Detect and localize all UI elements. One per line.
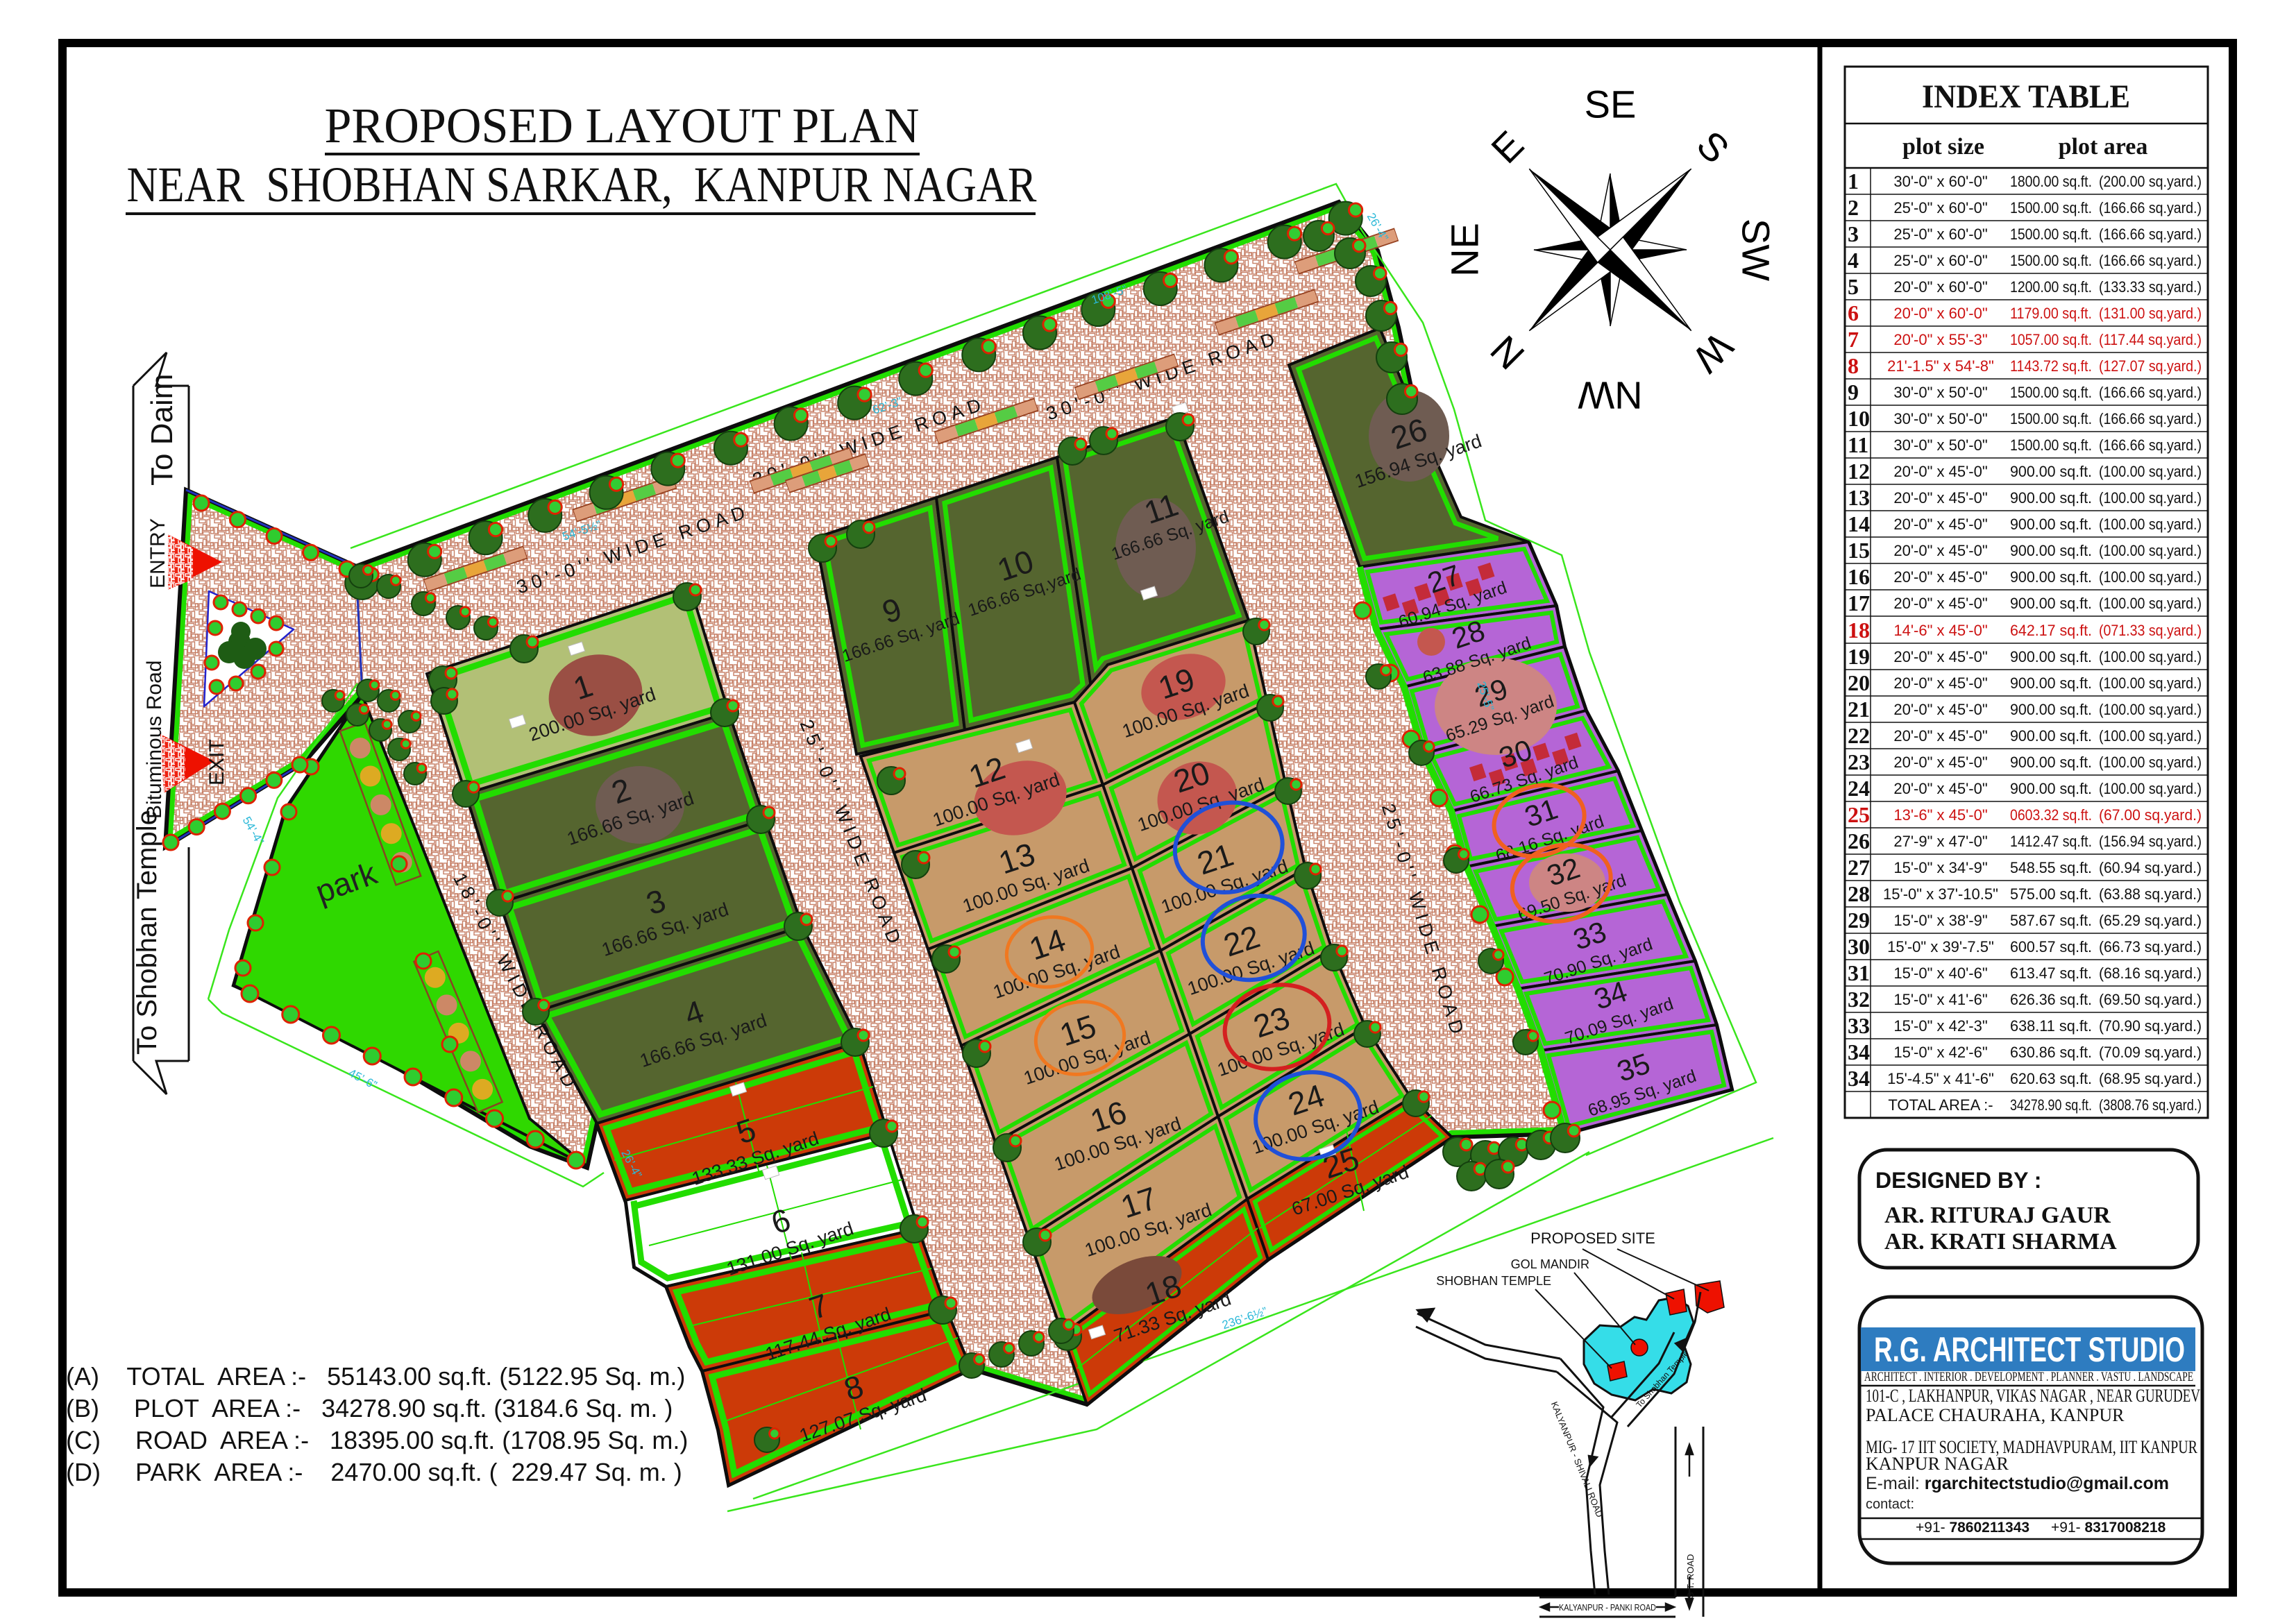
svg-text:(131.00 sq.yard.): (131.00 sq.yard.) — [2099, 305, 2202, 322]
svg-text:22: 22 — [1848, 723, 1870, 748]
svg-text:24: 24 — [1848, 776, 1870, 801]
svg-text:20'-0" x 45'-0": 20'-0" x 45'-0" — [1893, 701, 1987, 718]
svg-text:626.36 sq.ft.: 626.36 sq.ft. — [2010, 991, 2092, 1008]
svg-text:575.00 sq.ft.: 575.00 sq.ft. — [2010, 885, 2092, 903]
svg-text:(156.94 sq.yard.): (156.94 sq.yard.) — [2099, 833, 2202, 850]
svg-text:16: 16 — [1848, 564, 1870, 589]
svg-text:34: 34 — [1848, 1039, 1870, 1064]
svg-text:13: 13 — [1848, 485, 1870, 510]
svg-text:(63.88 sq.yard.): (63.88 sq.yard.) — [2099, 885, 2202, 903]
svg-text:14'-6" x 45'-0": 14'-6" x 45'-0" — [1893, 622, 1987, 639]
svg-text:+91- 8317008218: +91- 8317008218 — [2051, 1520, 2166, 1536]
svg-text:KANPUR NAGAR: KANPUR NAGAR — [1866, 1454, 2009, 1474]
svg-text:1200.00 sq.ft.: 1200.00 sq.ft. — [2010, 278, 2092, 296]
svg-text:(100.00 sq.yard.): (100.00 sq.yard.) — [2099, 727, 2202, 745]
svg-text:4: 4 — [1848, 248, 1859, 273]
svg-text:(166.66 sq.yard.): (166.66 sq.yard.) — [2099, 410, 2202, 427]
svg-text:(100.00 sq.yard.): (100.00 sq.yard.) — [2099, 595, 2202, 612]
svg-text:21: 21 — [1848, 697, 1870, 722]
svg-text:(68.95 sq.yard.): (68.95 sq.yard.) — [2099, 1070, 2202, 1087]
svg-text:25'-0" x 60'-0": 25'-0" x 60'-0" — [1893, 226, 1987, 243]
svg-text:contact:: contact: — [1866, 1497, 1914, 1512]
svg-text:(A) TOTAL AREA :- 55143.: (A) TOTAL AREA :- 55143.00 sq.ft. (5122.… — [66, 1362, 685, 1391]
svg-text:5: 5 — [1848, 274, 1859, 299]
svg-text:20'-0" x 45'-0": 20'-0" x 45'-0" — [1893, 780, 1987, 797]
svg-text:NEAR SHOBHAN SARKAR, KANPUR: NEAR SHOBHAN SARKAR, KANPUR NAGAR — [127, 157, 1037, 212]
svg-text:(66.73 sq.yard.): (66.73 sq.yard.) — [2099, 938, 2202, 955]
svg-text:(100.00 sq.yard.): (100.00 sq.yard.) — [2099, 701, 2202, 718]
svg-text:25'-0" x 60'-0": 25'-0" x 60'-0" — [1893, 199, 1987, 216]
svg-text:25: 25 — [1848, 802, 1870, 827]
svg-text:20'-0" x 45'-0": 20'-0" x 45'-0" — [1893, 542, 1987, 559]
svg-text:33: 33 — [1848, 1013, 1870, 1038]
svg-text:900.00 sq.ft.: 900.00 sq.ft. — [2010, 727, 2092, 745]
svg-text:(65.29 sq.yard.): (65.29 sq.yard.) — [2099, 912, 2202, 929]
svg-text:SW: SW — [1734, 219, 1778, 281]
svg-text:NE: NE — [1443, 223, 1487, 277]
svg-text:20'-0" x 60'-0": 20'-0" x 60'-0" — [1893, 305, 1987, 322]
svg-text:548.55 sq.ft.: 548.55 sq.ft. — [2010, 859, 2092, 876]
svg-text:1500.00 sq.ft.: 1500.00 sq.ft. — [2010, 384, 2092, 401]
svg-text:900.00 sq.ft.: 900.00 sq.ft. — [2010, 754, 2092, 771]
svg-text:630.86 sq.ft.: 630.86 sq.ft. — [2010, 1044, 2092, 1061]
svg-text:900.00 sq.ft.: 900.00 sq.ft. — [2010, 674, 2092, 692]
svg-text:642.17 sq.ft.: 642.17 sq.ft. — [2010, 622, 2092, 639]
svg-text:900.00 sq.ft.: 900.00 sq.ft. — [2010, 489, 2092, 507]
svg-text:20'-0" x 45'-0": 20'-0" x 45'-0" — [1893, 674, 1987, 692]
svg-text:TOTAL AREA :-: TOTAL AREA :- — [1888, 1096, 1993, 1114]
svg-text:(133.33 sq.yard.): (133.33 sq.yard.) — [2099, 278, 2202, 296]
svg-text:(70.09 sq.yard.): (70.09 sq.yard.) — [2099, 1044, 2202, 1061]
svg-text:900.00 sq.ft.: 900.00 sq.ft. — [2010, 568, 2092, 586]
svg-text:600.57 sq.ft.: 600.57 sq.ft. — [2010, 938, 2092, 955]
svg-text:900.00 sq.ft.: 900.00 sq.ft. — [2010, 780, 2092, 797]
svg-text:15: 15 — [1848, 538, 1870, 563]
svg-text:15'-0" x 41'-6": 15'-0" x 41'-6" — [1893, 991, 1987, 1008]
svg-text:19: 19 — [1848, 644, 1870, 669]
svg-text:(100.00 sq.yard.): (100.00 sq.yard.) — [2099, 568, 2202, 586]
svg-text:20'-0" x 45'-0": 20'-0" x 45'-0" — [1893, 463, 1987, 480]
svg-text:587.67 sq.ft.: 587.67 sq.ft. — [2010, 912, 2092, 929]
svg-text:18: 18 — [1848, 618, 1870, 643]
svg-text:10: 10 — [1848, 406, 1870, 431]
svg-text:GOL MANDIR: GOL MANDIR — [1511, 1257, 1589, 1271]
svg-text:EXIT: EXIT — [205, 739, 228, 785]
svg-text:13'-6" x 45'-0": 13'-6" x 45'-0" — [1893, 806, 1987, 824]
svg-text:(166.66 sq.yard.): (166.66 sq.yard.) — [2099, 436, 2202, 454]
svg-text:PALACE CHAURAHA, KANPUR: PALACE CHAURAHA, KANPUR — [1866, 1405, 2125, 1425]
svg-text:AR. RITURAJ GAUR: AR. RITURAJ GAUR — [1884, 1203, 2111, 1228]
svg-text:11: 11 — [1848, 432, 1868, 457]
svg-text:(200.00 sq.yard.): (200.00 sq.yard.) — [2099, 173, 2202, 190]
svg-text:6: 6 — [1848, 300, 1859, 325]
svg-text:3: 3 — [1848, 221, 1859, 246]
svg-text:+91- 7860211343: +91- 7860211343 — [1916, 1520, 2029, 1536]
svg-text:(100.00 sq.yard.): (100.00 sq.yard.) — [2099, 463, 2202, 480]
svg-text:101-C , LAKHANPUR, VIKAS NAGAR: 101-C , LAKHANPUR, VIKAS NAGAR , NEAR GU… — [1866, 1386, 2200, 1406]
svg-text:20'-0" x 45'-0": 20'-0" x 45'-0" — [1893, 489, 1987, 507]
svg-text:(166.66 sq.yard.): (166.66 sq.yard.) — [2099, 226, 2202, 243]
svg-text:(117.44 sq.yard.): (117.44 sq.yard.) — [2099, 331, 2202, 348]
svg-text:28: 28 — [1848, 881, 1870, 906]
svg-text:900.00 sq.ft.: 900.00 sq.ft. — [2010, 463, 2092, 480]
svg-text:20'-0" x 45'-0": 20'-0" x 45'-0" — [1893, 648, 1987, 665]
svg-text:(100.00 sq.yard.): (100.00 sq.yard.) — [2099, 516, 2202, 533]
svg-text:(60.94 sq.yard.): (60.94 sq.yard.) — [2099, 859, 2202, 876]
svg-text:30'-0" x 50'-0": 30'-0" x 50'-0" — [1893, 384, 1987, 401]
svg-text:15'-0" x 40'-6": 15'-0" x 40'-6" — [1893, 965, 1987, 982]
svg-text:1500.00 sq.ft.: 1500.00 sq.ft. — [2010, 436, 2092, 454]
svg-text:15'-0" x 38'-9": 15'-0" x 38'-9" — [1893, 912, 1987, 929]
svg-text:To Shobhan Temple: To Shobhan Temple — [132, 810, 162, 1055]
svg-text:20'-0" x 45'-0": 20'-0" x 45'-0" — [1893, 568, 1987, 586]
svg-text:NW: NW — [1578, 373, 1642, 417]
svg-text:R.G. ARCHITECT STUDIO: R.G. ARCHITECT STUDIO — [1874, 1330, 2185, 1369]
svg-text:900.00 sq.ft.: 900.00 sq.ft. — [2010, 648, 2092, 665]
svg-text:21'-1.5" x 54'-8": 21'-1.5" x 54'-8" — [1887, 357, 1994, 375]
svg-text:1800.00 sq.ft.: 1800.00 sq.ft. — [2010, 173, 2092, 190]
svg-text:20'-0" x 45'-0": 20'-0" x 45'-0" — [1893, 754, 1987, 771]
svg-text:32: 32 — [1848, 987, 1870, 1012]
svg-text:1500.00 sq.ft.: 1500.00 sq.ft. — [2010, 410, 2092, 427]
svg-text:(100.00 sq.yard.): (100.00 sq.yard.) — [2099, 674, 2202, 692]
svg-text:1179.00 sq.ft.: 1179.00 sq.ft. — [2010, 305, 2092, 322]
svg-text:15'-0" x 39'-7.5": 15'-0" x 39'-7.5" — [1887, 938, 1994, 955]
svg-text:15'-0" x 42'-3": 15'-0" x 42'-3" — [1893, 1017, 1987, 1035]
svg-text:KALYANPUR - PANKI ROAD: KALYANPUR - PANKI ROAD — [1559, 1602, 1656, 1613]
svg-text:31: 31 — [1848, 960, 1870, 985]
svg-text:900.00 sq.ft.: 900.00 sq.ft. — [2010, 701, 2092, 718]
svg-text:15'-0" x 37'-10.5": 15'-0" x 37'-10.5" — [1883, 885, 1998, 903]
svg-text:(100.00 sq.yard.): (100.00 sq.yard.) — [2099, 489, 2202, 507]
svg-text:900.00 sq.ft.: 900.00 sq.ft. — [2010, 542, 2092, 559]
svg-text:INDEX TABLE: INDEX TABLE — [1922, 78, 2130, 115]
svg-text:1057.00 sq.ft.: 1057.00 sq.ft. — [2010, 331, 2092, 348]
svg-text:1500.00 sq.ft.: 1500.00 sq.ft. — [2010, 199, 2092, 216]
svg-text:27'-9" x 47'-0": 27'-9" x 47'-0" — [1893, 833, 1987, 850]
svg-text:(67.00 sq.yard.): (67.00 sq.yard.) — [2099, 806, 2202, 824]
svg-text:20'-0" x 45'-0": 20'-0" x 45'-0" — [1893, 595, 1987, 612]
svg-text:(100.00 sq.yard.): (100.00 sq.yard.) — [2099, 754, 2202, 771]
svg-text:(100.00 sq.yard.): (100.00 sq.yard.) — [2099, 542, 2202, 559]
svg-text:900.00 sq.ft.: 900.00 sq.ft. — [2010, 516, 2092, 533]
svg-text:20'-0" x 45'-0": 20'-0" x 45'-0" — [1893, 727, 1987, 745]
svg-text:(69.50 sq.yard.): (69.50 sq.yard.) — [2099, 991, 2202, 1008]
svg-text:(70.90 sq.yard.): (70.90 sq.yard.) — [2099, 1017, 2202, 1035]
svg-text:8: 8 — [1848, 353, 1859, 378]
svg-text:26: 26 — [1848, 829, 1870, 853]
svg-text:17: 17 — [1848, 590, 1870, 615]
svg-text:0603.32 sq.ft.: 0603.32 sq.ft. — [2010, 806, 2092, 824]
svg-text:1143.72 sq.ft.: 1143.72 sq.ft. — [2010, 357, 2092, 375]
svg-text:638.11 sq.ft.: 638.11 sq.ft. — [2010, 1017, 2092, 1035]
svg-text:9: 9 — [1848, 380, 1859, 405]
svg-text:620.63 sq.ft.: 620.63 sq.ft. — [2010, 1070, 2092, 1087]
svg-text:PROPOSED SITE: PROPOSED SITE — [1530, 1230, 1655, 1247]
svg-text:25'-0" x 60'-0": 25'-0" x 60'-0" — [1893, 252, 1987, 269]
svg-text:(100.00 sq.yard.): (100.00 sq.yard.) — [2099, 780, 2202, 797]
svg-text:(B) PLOT AREA :- 34278.: (B) PLOT AREA :- 34278.90 sq.ft. (3184.6… — [66, 1394, 673, 1422]
svg-text:1: 1 — [1848, 169, 1859, 194]
svg-text:29: 29 — [1848, 908, 1870, 933]
svg-text:20'-0" x 60'-0": 20'-0" x 60'-0" — [1893, 278, 1987, 296]
svg-text:(C) ROAD AREA :- 18395.: (C) ROAD AREA :- 18395.00 sq.ft. (1708.9… — [66, 1426, 688, 1454]
svg-text:20'-0" x 45'-0": 20'-0" x 45'-0" — [1893, 516, 1987, 533]
svg-text:(166.66 sq.yard.): (166.66 sq.yard.) — [2099, 252, 2202, 269]
svg-text:G T. ROAD: G T. ROAD — [1685, 1554, 1696, 1599]
svg-text:900.00 sq.ft.: 900.00 sq.ft. — [2010, 595, 2092, 612]
svg-text:(3808.76 sq.yard.): (3808.76 sq.yard.) — [2099, 1096, 2202, 1114]
svg-text:613.47 sq.ft.: 613.47 sq.ft. — [2010, 965, 2092, 982]
svg-text:(071.33 sq.yard.): (071.33 sq.yard.) — [2099, 622, 2202, 639]
svg-text:15'-0" x 34'-9": 15'-0" x 34'-9" — [1893, 859, 1987, 876]
svg-text:34: 34 — [1848, 1066, 1870, 1091]
svg-text:(100.00 sq.yard.): (100.00 sq.yard.) — [2099, 648, 2202, 665]
svg-text:34278.90 sq.ft.: 34278.90 sq.ft. — [2010, 1096, 2092, 1114]
svg-text:ARCHITECT . INTERIOR . DEVELOP: ARCHITECT . INTERIOR . DEVELOPMENT . PLA… — [1864, 1370, 2193, 1384]
svg-text:SHOBHAN TEMPLE: SHOBHAN TEMPLE — [1436, 1274, 1551, 1288]
svg-text:(68.16 sq.yard.): (68.16 sq.yard.) — [2099, 965, 2202, 982]
svg-text:(166.66 sq.yard.): (166.66 sq.yard.) — [2099, 384, 2202, 401]
svg-text:AR. KRATI SHARMA: AR. KRATI SHARMA — [1884, 1229, 2117, 1255]
svg-text:27: 27 — [1848, 855, 1870, 880]
svg-text:7: 7 — [1848, 327, 1859, 352]
svg-text:15'-0" x 42'-6": 15'-0" x 42'-6" — [1893, 1044, 1987, 1061]
svg-text:14: 14 — [1848, 511, 1870, 536]
svg-text:plot size: plot size — [1902, 134, 1984, 160]
svg-text:To Daim: To Daim — [145, 374, 179, 486]
svg-text:plot area: plot area — [2059, 134, 2148, 160]
svg-text:(127.07 sq.yard.): (127.07 sq.yard.) — [2099, 357, 2202, 375]
svg-text:30'-0" x 60'-0": 30'-0" x 60'-0" — [1893, 173, 1987, 190]
svg-text:20'-0" x 55'-3": 20'-0" x 55'-3" — [1893, 331, 1987, 348]
svg-text:12: 12 — [1848, 459, 1870, 484]
svg-text:(166.66 sq.yard.): (166.66 sq.yard.) — [2099, 199, 2202, 216]
svg-text:20: 20 — [1848, 670, 1870, 695]
svg-text:2: 2 — [1848, 195, 1859, 220]
svg-text:1412.47 sq.ft.: 1412.47 sq.ft. — [2010, 833, 2092, 850]
svg-text:15'-4.5" x 41'-6": 15'-4.5" x 41'-6" — [1887, 1070, 1994, 1087]
svg-text:E-mail: rgarchitectstudio@gmai: E-mail: rgarchitectstudio@gmail.com — [1866, 1474, 2169, 1493]
svg-text:1500.00 sq.ft.: 1500.00 sq.ft. — [2010, 252, 2092, 269]
svg-text:ENTRY: ENTRY — [146, 518, 169, 588]
svg-text:PROPOSED LAYOUT PLAN: PROPOSED LAYOUT PLAN — [325, 98, 920, 153]
svg-text:30'-0" x 50'-0": 30'-0" x 50'-0" — [1893, 410, 1987, 427]
svg-text:1500.00 sq.ft.: 1500.00 sq.ft. — [2010, 226, 2092, 243]
svg-text:30: 30 — [1848, 934, 1870, 959]
svg-text:23: 23 — [1848, 749, 1870, 774]
svg-text:(D) PARK AREA :- 2470.: (D) PARK AREA :- 2470.00 sq.ft. ( 229.47… — [66, 1458, 682, 1486]
svg-text:30'-0" x 50'-0": 30'-0" x 50'-0" — [1893, 436, 1987, 454]
svg-text:DESIGNED BY :: DESIGNED BY : — [1875, 1168, 2041, 1193]
svg-text:SE: SE — [1585, 83, 1637, 126]
